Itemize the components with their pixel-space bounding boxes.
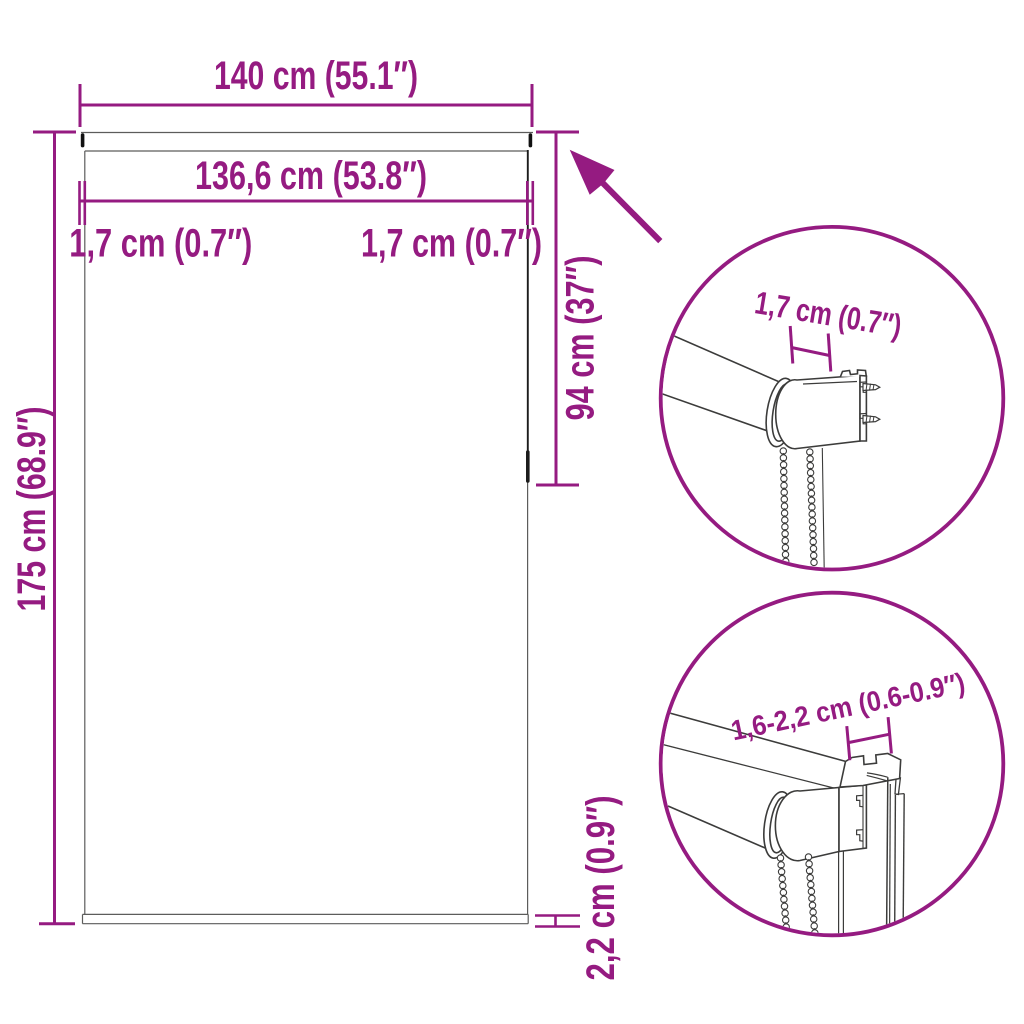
svg-text:136,6 cm (53.8″): 136,6 cm (53.8″): [195, 154, 427, 198]
svg-text:140 cm (55.1″): 140 cm (55.1″): [214, 54, 418, 98]
svg-text:94 cm (37″): 94 cm (37″): [559, 256, 603, 421]
svg-text:1,7 cm (0.7″): 1,7 cm (0.7″): [69, 222, 252, 266]
svg-text:175 cm (68.9″): 175 cm (68.9″): [10, 407, 54, 612]
svg-text:1,7 cm (0.7″): 1,7 cm (0.7″): [361, 222, 542, 266]
svg-text:2,2 cm (0.9″): 2,2 cm (0.9″): [579, 796, 623, 981]
